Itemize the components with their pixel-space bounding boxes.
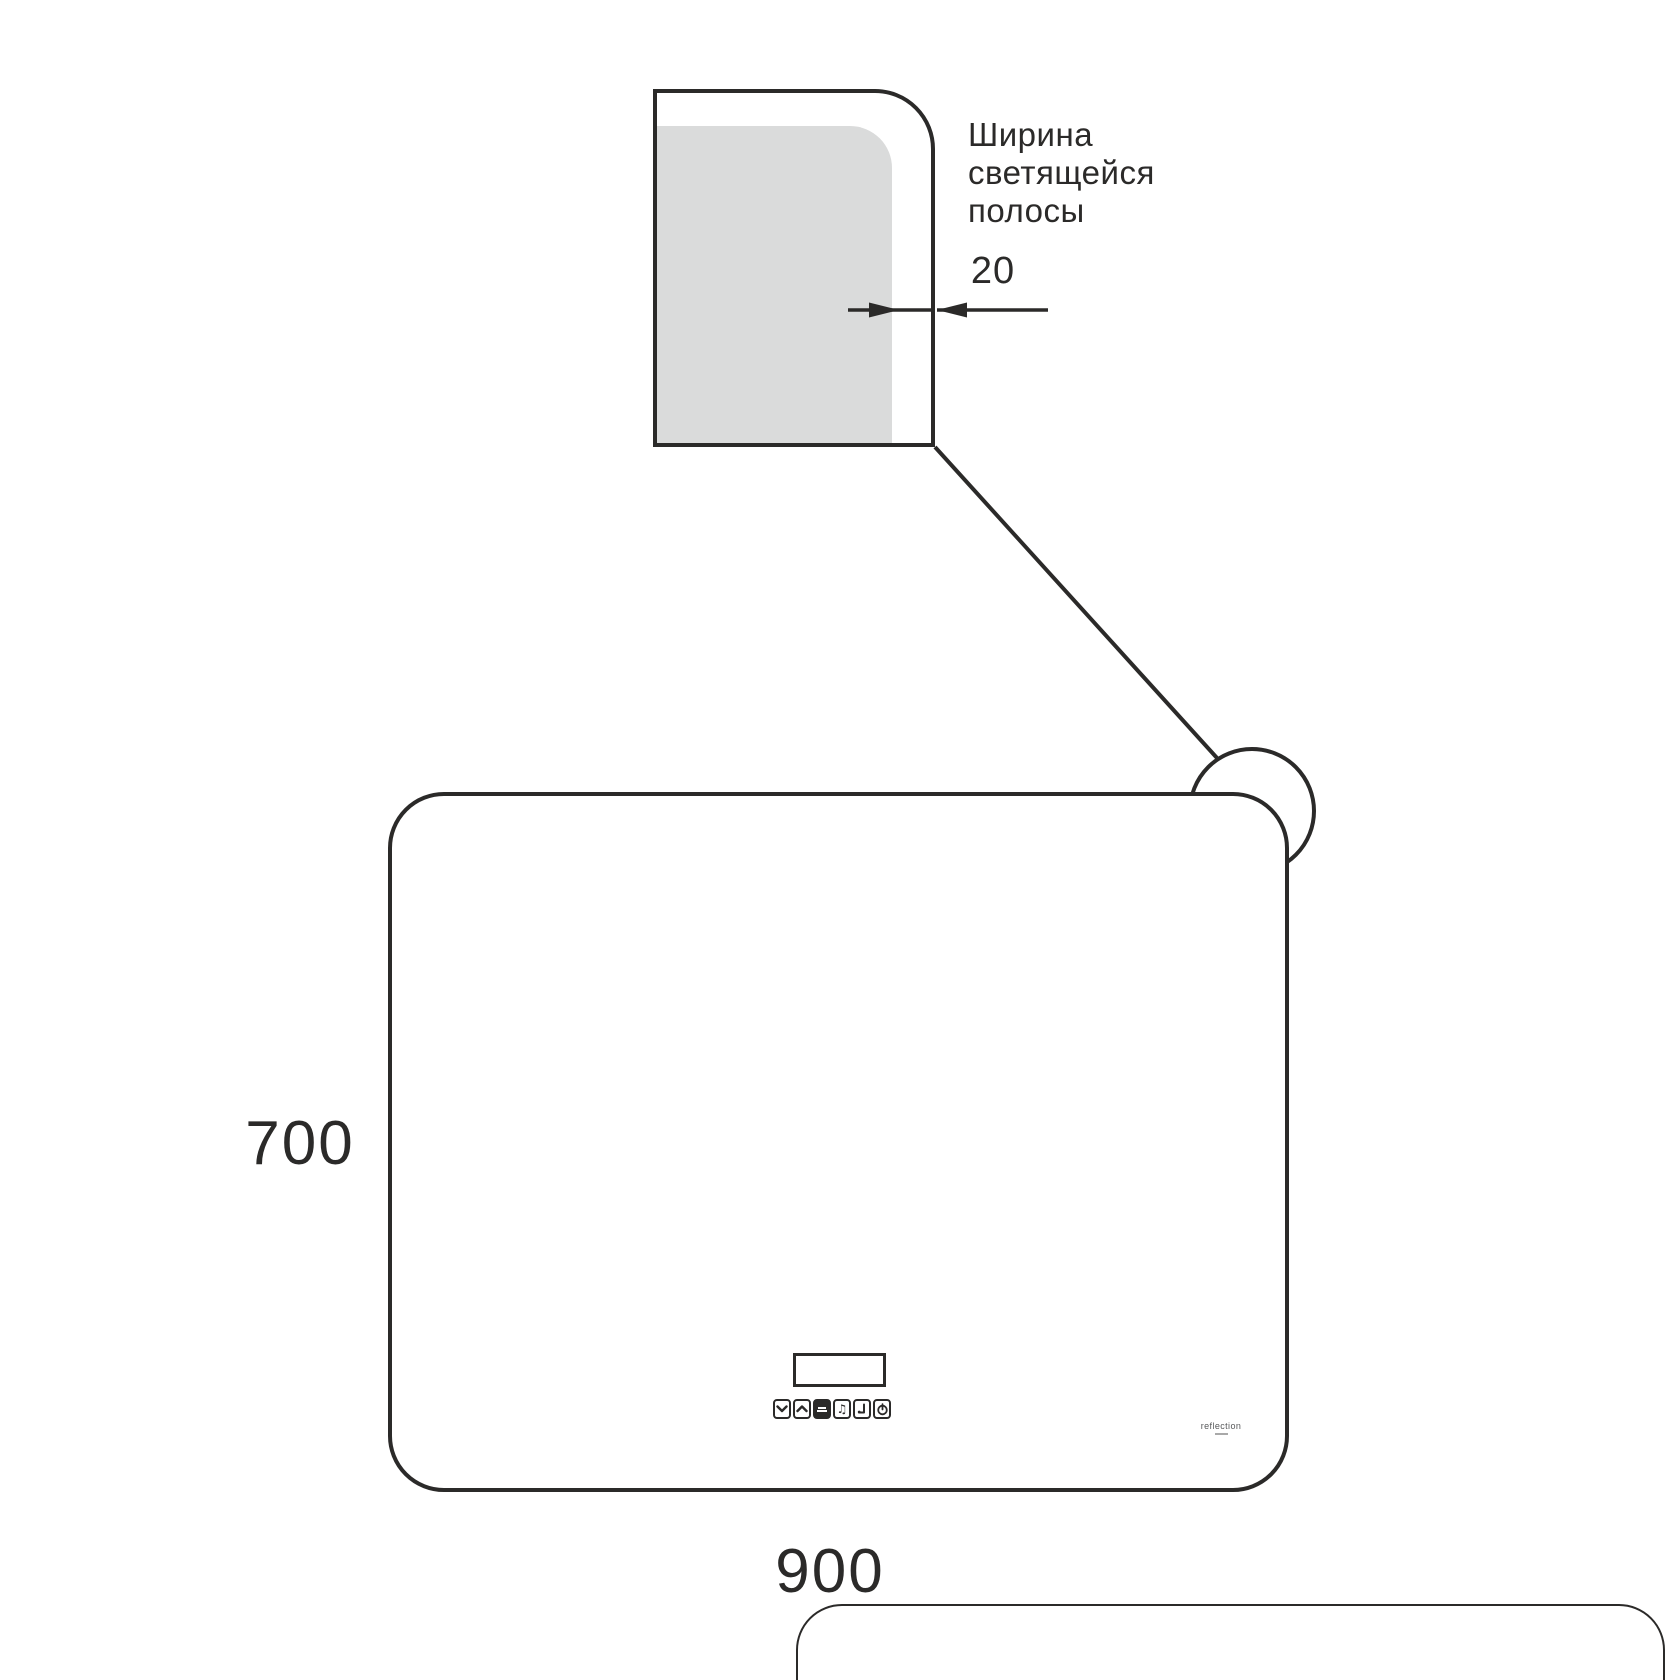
technical-drawing-canvas: Ширина светящейся полосы 20 <box>0 0 1680 1680</box>
led-strip-inner-outline <box>796 1604 1665 1680</box>
brand-logo: reflection <box>1190 1421 1252 1435</box>
leader-line <box>935 447 1217 758</box>
strip-width-label: Ширина светящейся полосы <box>968 116 1198 230</box>
music-button: ♫ <box>833 1399 851 1419</box>
text-badge-icon <box>817 1407 827 1412</box>
corner-detail-view <box>653 89 935 447</box>
power-icon <box>876 1403 889 1416</box>
led-display <box>793 1353 886 1387</box>
music-note-icon: ♫ <box>837 1403 848 1415</box>
width-dimension-label: 900 <box>763 1536 897 1607</box>
temperature-button <box>853 1399 871 1419</box>
power-button <box>873 1399 891 1419</box>
dimension-arrow-left-pointing <box>937 303 967 318</box>
chevron-down-icon <box>776 1403 788 1415</box>
height-dimension-label: 700 <box>233 1108 367 1179</box>
brand-logo-subtext <box>1215 1433 1228 1435</box>
mirror-outline <box>388 792 1289 1492</box>
mode-button <box>813 1399 831 1419</box>
brand-logo-text: reflection <box>1190 1421 1252 1431</box>
touch-control-panel: ♫ <box>773 1399 891 1419</box>
brightness-down-button <box>773 1399 791 1419</box>
detail-shaded-mirror-area <box>657 126 892 443</box>
strip-width-value: 20 <box>937 250 1049 293</box>
thermometer-icon <box>856 1403 868 1415</box>
brightness-up-button <box>793 1399 811 1419</box>
chevron-up-icon <box>796 1403 808 1415</box>
